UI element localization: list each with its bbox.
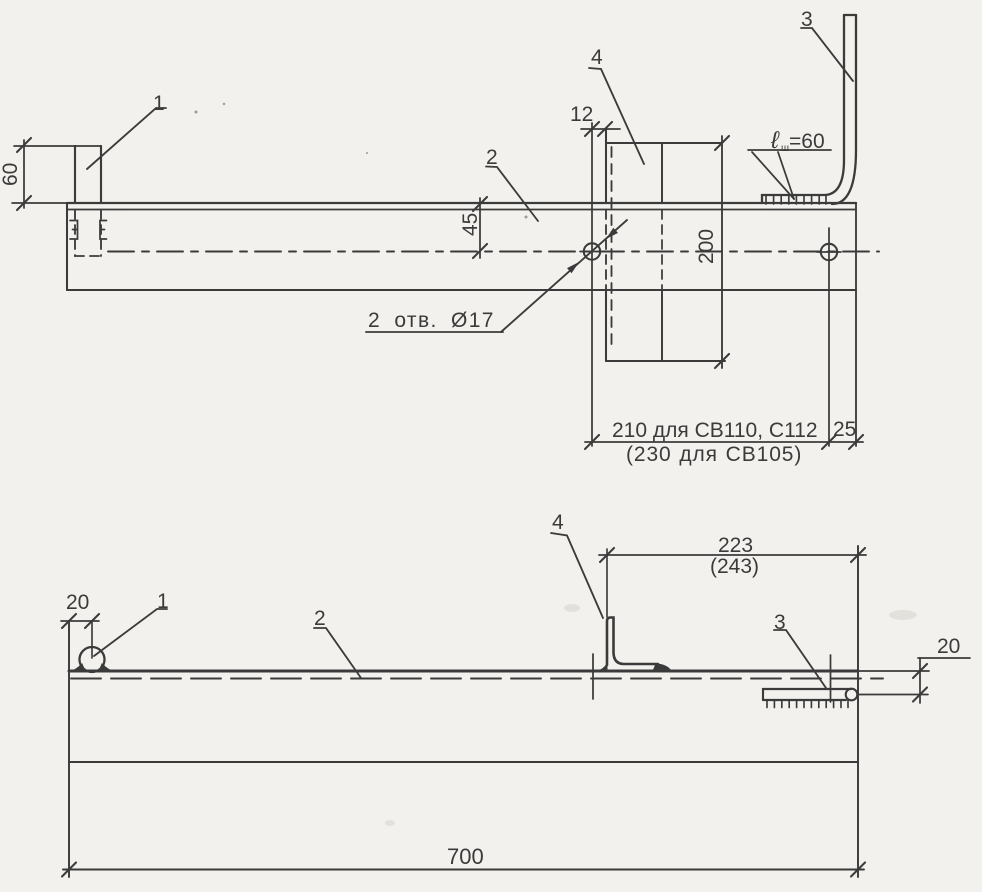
svg-text:20: 20 (66, 591, 89, 614)
svg-text:ℓ: ℓ (770, 127, 780, 154)
svg-text:=60: =60 (789, 130, 825, 153)
svg-text:(243): (243) (710, 555, 759, 578)
svg-text:223: 223 (718, 534, 753, 557)
svg-text:60: 60 (0, 163, 22, 186)
svg-text:210 для СВ110, С112: 210 для СВ110, С112 (612, 419, 818, 442)
svg-text:12: 12 (570, 103, 593, 126)
svg-text:4: 4 (591, 46, 603, 69)
svg-text:200: 200 (695, 229, 718, 264)
svg-text:2: 2 (486, 146, 498, 169)
svg-text:700: 700 (447, 844, 484, 869)
svg-text:ш: ш (781, 143, 789, 154)
svg-text:(230 для СВ105): (230 для СВ105) (626, 443, 802, 466)
svg-text:2: 2 (314, 607, 326, 630)
svg-text:45: 45 (459, 213, 482, 236)
svg-text:25: 25 (833, 418, 856, 441)
svg-text:1: 1 (153, 92, 165, 115)
svg-text:4: 4 (552, 511, 564, 534)
svg-text:1: 1 (157, 590, 169, 613)
svg-text:2 отв. Ø17: 2 отв. Ø17 (368, 309, 495, 332)
svg-text:20: 20 (937, 635, 960, 658)
svg-text:3: 3 (801, 8, 813, 31)
svg-text:3: 3 (774, 611, 786, 634)
